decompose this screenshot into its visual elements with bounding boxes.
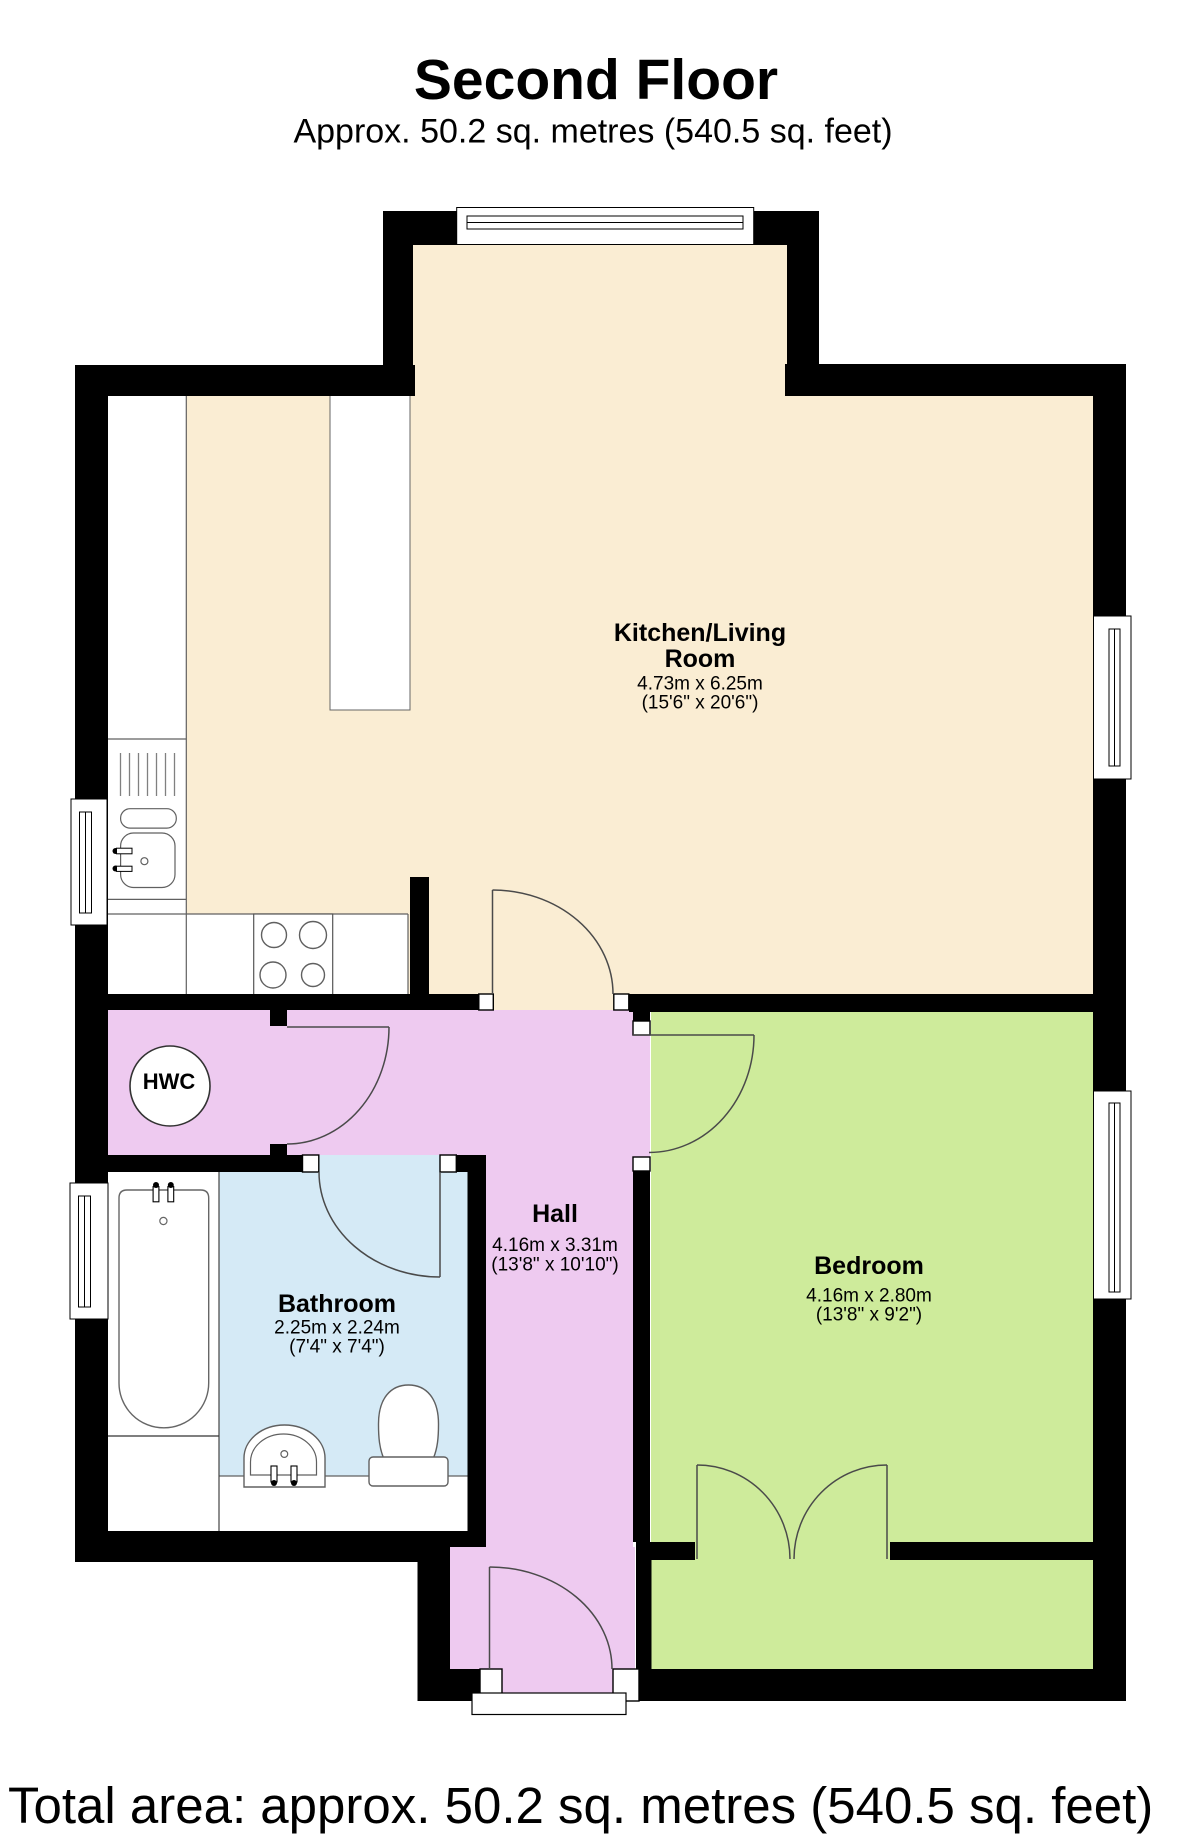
svg-text:Kitchen/Living: Kitchen/Living — [614, 619, 786, 647]
svg-text:(15'6" x 20'6"): (15'6" x 20'6") — [642, 693, 759, 714]
svg-text:(7'4" x 7'4"): (7'4" x 7'4") — [289, 1337, 385, 1358]
svg-text:Bathroom: Bathroom — [278, 1290, 396, 1318]
svg-text:4.16m x 3.31m: 4.16m x 3.31m — [492, 1235, 618, 1256]
svg-text:Bedroom: Bedroom — [814, 1252, 924, 1280]
svg-text:2.25m x 2.24m: 2.25m x 2.24m — [274, 1318, 400, 1339]
svg-text:Approx. 50.2 sq. metres (540.5: Approx. 50.2 sq. metres (540.5 sq. feet) — [293, 113, 892, 151]
svg-text:4.73m x 6.25m: 4.73m x 6.25m — [637, 674, 763, 695]
svg-text:Room: Room — [665, 645, 736, 673]
svg-text:(13'8" x 10'10"): (13'8" x 10'10") — [491, 1255, 618, 1276]
svg-text:HWC: HWC — [143, 1069, 196, 1094]
svg-text:Total area: approx. 50.2 sq. m: Total area: approx. 50.2 sq. metres (540… — [8, 1777, 1153, 1834]
svg-text:(13'8" x 9'2"): (13'8" x 9'2") — [816, 1305, 922, 1326]
svg-text:Hall: Hall — [532, 1200, 578, 1228]
svg-text:Second Floor: Second Floor — [414, 48, 778, 112]
svg-text:4.16m x 2.80m: 4.16m x 2.80m — [806, 1286, 932, 1307]
